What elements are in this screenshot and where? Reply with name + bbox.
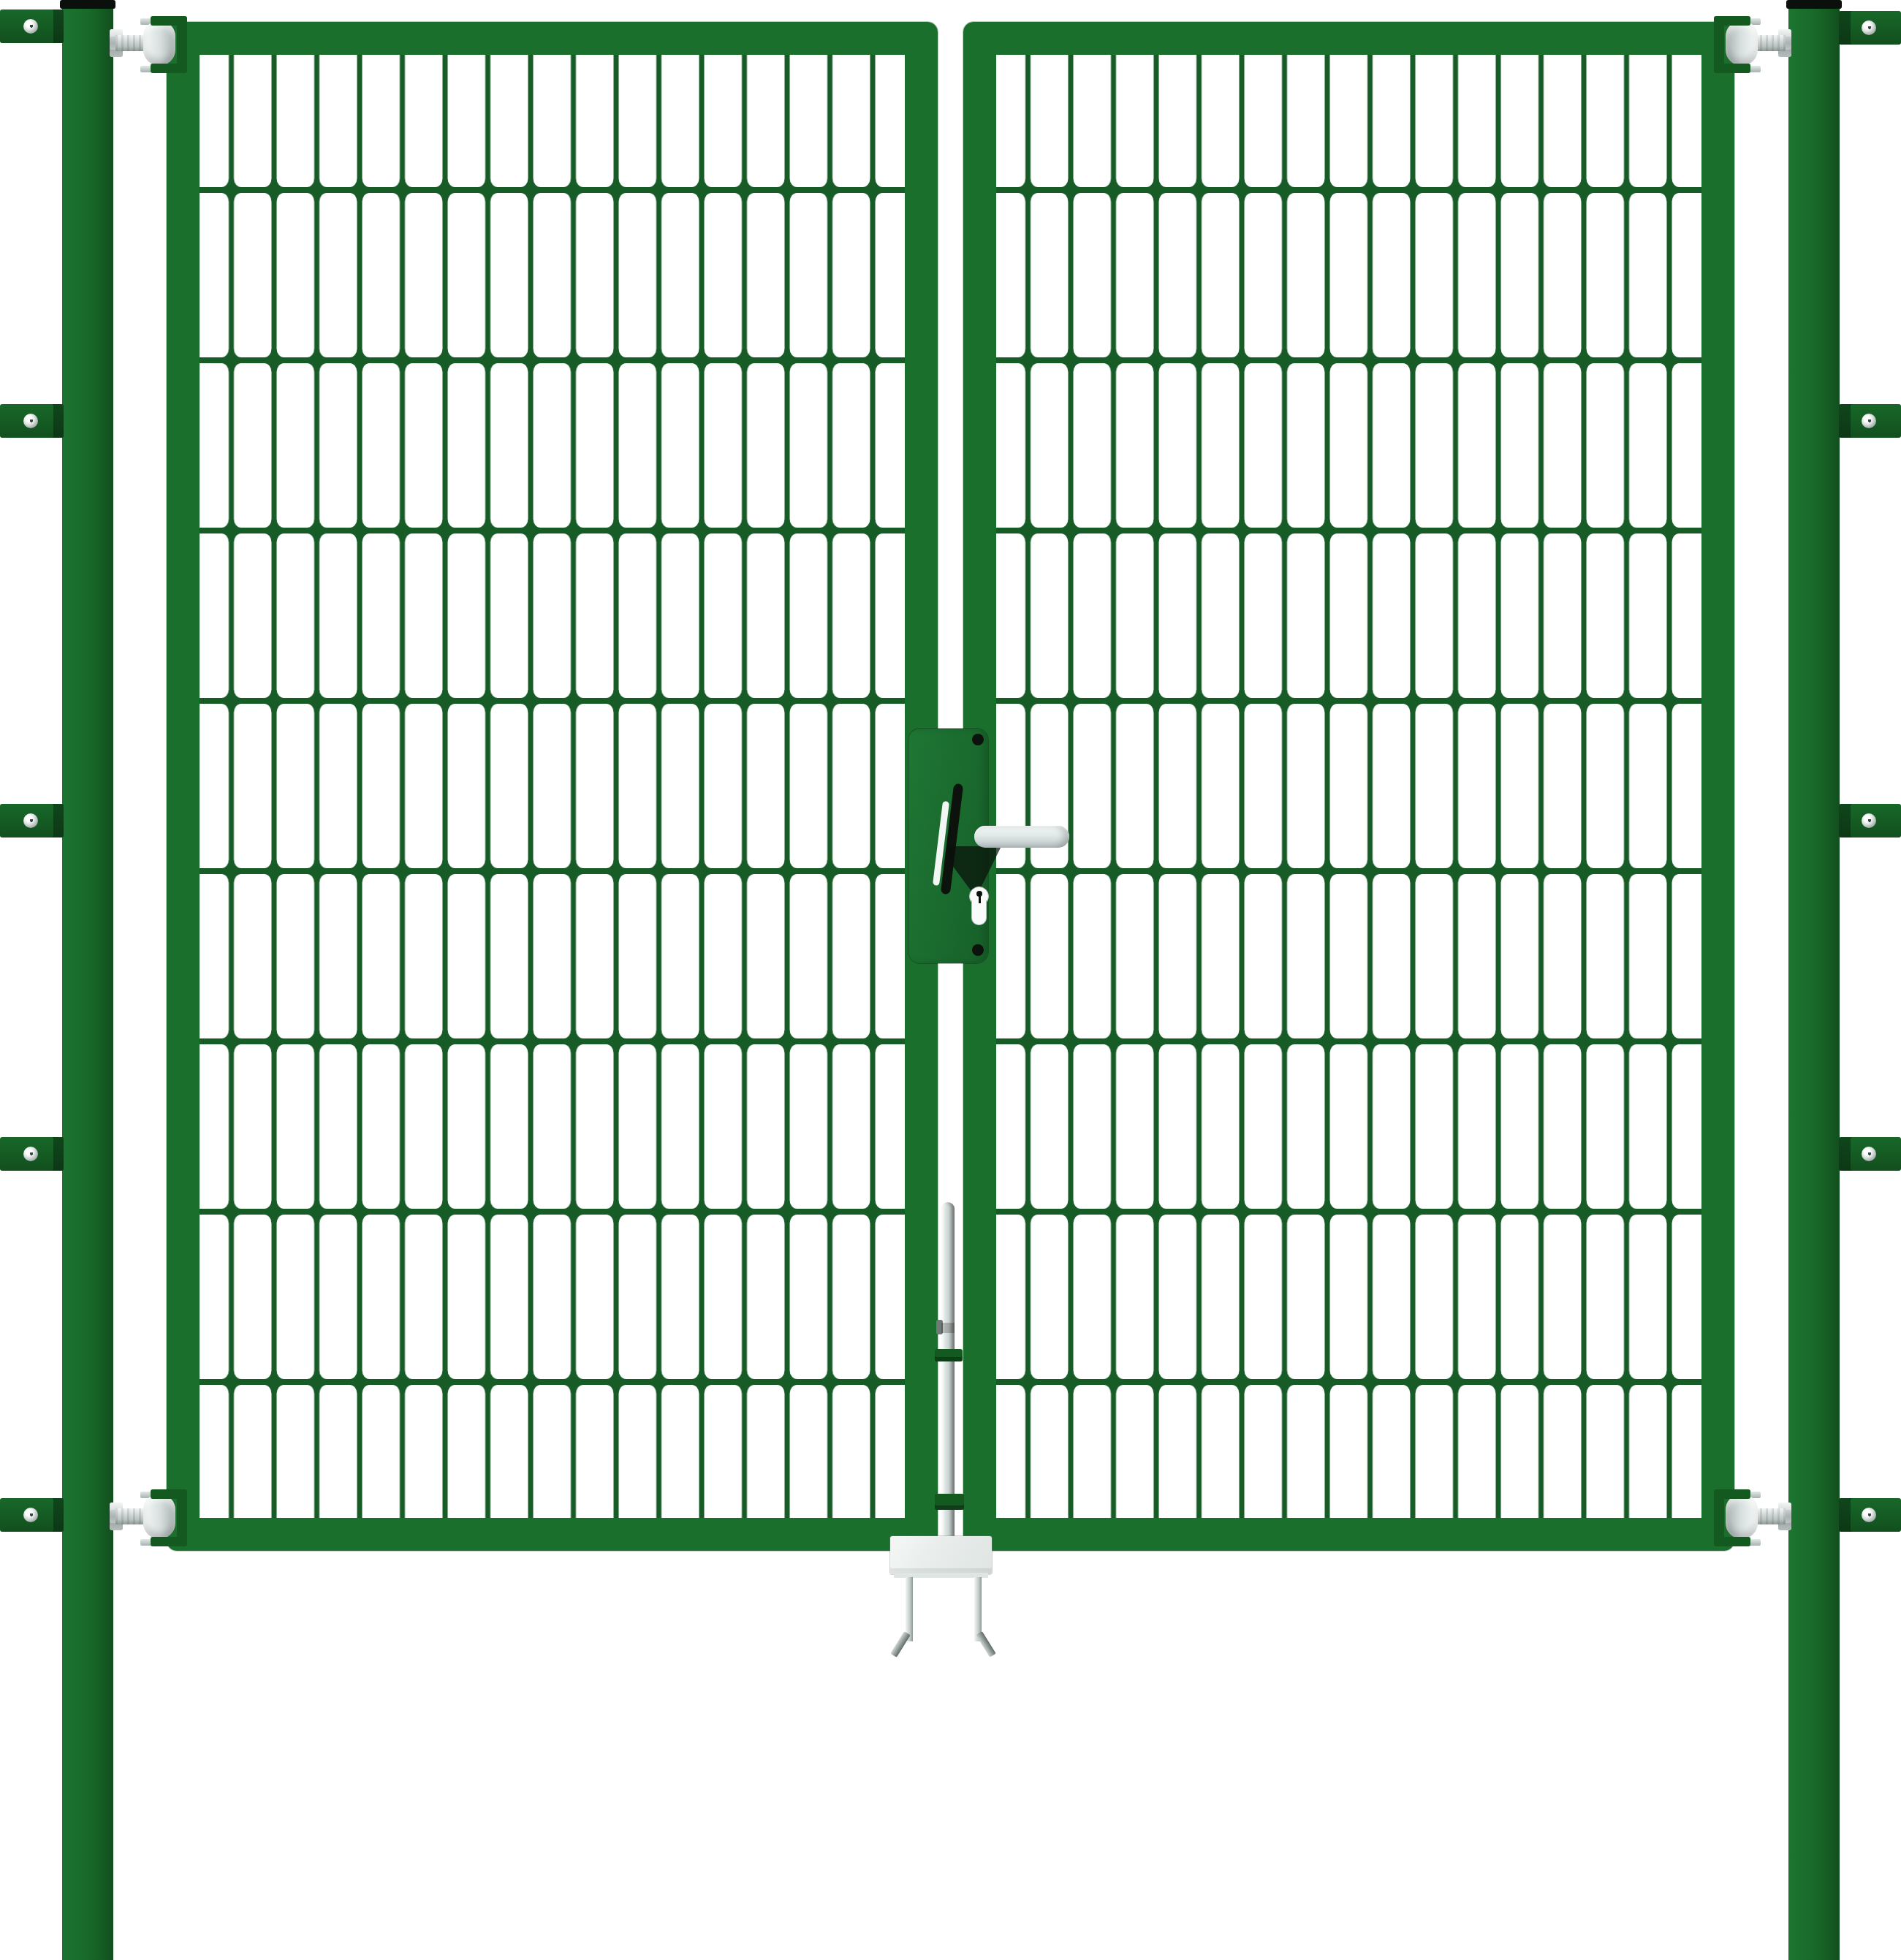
ground-plate [890,1536,992,1574]
fence-bracket [1839,804,1901,837]
bracket-screw-icon [23,1508,38,1522]
post-right [1788,4,1840,1960]
product-photo-double-wing-mesh-gate [0,0,1901,1960]
bracket-screw-icon [1862,1147,1876,1161]
fence-bracket [1839,1137,1901,1171]
lock-screw-icon [972,734,984,745]
hinge-cylinder-icon [143,1494,175,1539]
fence-bracket [1839,404,1901,438]
hinge-clamp [177,1491,187,1545]
bracket-screw-icon [1862,20,1876,35]
bracket-screw-icon [1862,1508,1876,1522]
hinge-top-left [110,16,187,73]
post-left [62,4,113,1960]
drop-bolt-guide [935,1494,964,1510]
bracket-screw-icon [23,414,38,428]
lock-screw-icon [972,944,984,956]
hinge-clamp [1714,1491,1724,1545]
fence-bracket [0,804,64,837]
hinge-top-right [1714,16,1791,73]
bracket-screw-icon [23,19,38,34]
mesh-panel-left [200,55,905,1518]
bracket-screw-icon [23,813,38,828]
bracket-screw-icon [1862,813,1876,828]
drop-bolt-guide [935,1349,963,1361]
bracket-screw-icon [23,1147,38,1161]
hinge-bottom-left [110,1489,187,1546]
gate-wing-right [963,22,1734,1551]
hinge-clamp [1714,18,1724,72]
drop-bolt-band [941,1323,955,1333]
post-left-cap [60,0,115,9]
fence-bracket [0,1137,64,1171]
post-right-cap [1786,0,1842,9]
fence-bracket [0,404,64,438]
fence-bracket [0,10,64,43]
drop-bolt-rod [941,1202,955,1542]
gate-handle [974,826,1069,848]
hinge-cylinder-icon [1726,20,1758,66]
fence-bracket [0,1498,64,1532]
hinge-cylinder-icon [143,20,175,66]
anchor-foot [976,1631,996,1657]
hinge-clamp [177,18,187,72]
mesh-panel-right [996,55,1701,1518]
fence-bracket [1839,1498,1901,1532]
euro-cylinder-body [971,900,987,925]
hinge-cylinder-icon [1726,1494,1758,1539]
fence-bracket [1839,11,1901,45]
hinge-bottom-right [1714,1489,1791,1546]
anchor-foot [890,1631,911,1657]
anchor-leg [906,1577,913,1641]
gate-wing-left [167,22,938,1551]
bracket-screw-icon [1862,414,1876,428]
keyhole-stem [979,895,981,903]
